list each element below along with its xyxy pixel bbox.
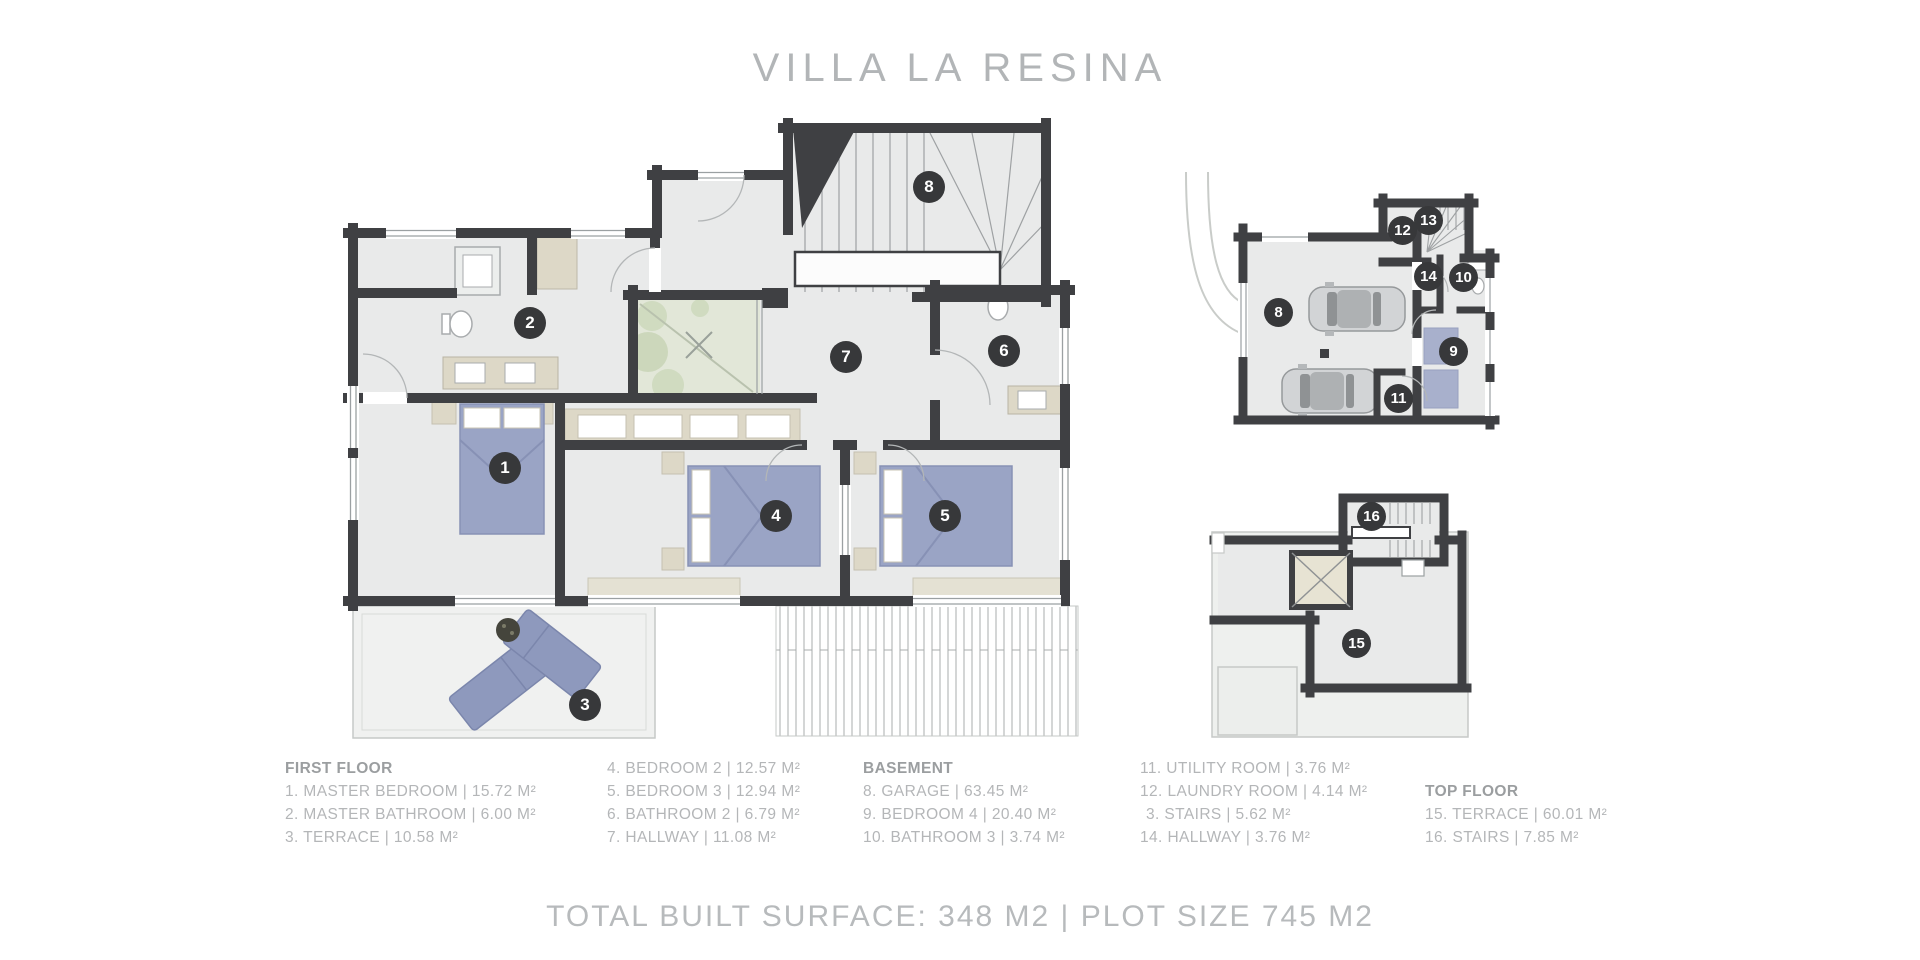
garage-pillar xyxy=(1320,349,1329,358)
room-badge-15: 15 xyxy=(1342,629,1371,658)
page-title: VILLA LA RESINA xyxy=(0,46,1920,91)
basement-plan-drawing xyxy=(1160,160,1540,470)
room-badge-14: 14 xyxy=(1414,262,1443,291)
room-badge-13: 13 xyxy=(1414,206,1443,235)
stair-nib xyxy=(1402,560,1424,576)
legend-basement: BASEMENT 8. GARAGE | 63.45 M² 9. BEDROOM… xyxy=(863,757,1065,849)
legend-item: 11. UTILITY ROOM | 3.76 M² xyxy=(1140,757,1367,780)
total-surface-text: TOTAL BUILT SURFACE: 348 M2 | PLOT SIZE … xyxy=(0,900,1920,934)
legend-item: 5. BEDROOM 3 | 12.94 M² xyxy=(607,780,800,803)
legend-item: 7. HALLWAY | 11.08 M² xyxy=(607,826,800,849)
legend-heading: TOP FLOOR xyxy=(1425,780,1607,803)
room-badge-9: 9 xyxy=(1439,337,1468,366)
room-badge-3: 3 xyxy=(569,689,601,721)
lower-terrace xyxy=(1218,667,1297,735)
driveway-curves xyxy=(1186,172,1243,334)
legend-item: 14. HALLWAY | 3.76 M² xyxy=(1140,826,1367,849)
skylight xyxy=(1292,553,1350,607)
room-badge-8-basement: 8 xyxy=(1264,298,1293,327)
room-badge-4: 4 xyxy=(760,500,792,532)
legend-item: 3. TERRACE | 10.58 M² xyxy=(285,826,536,849)
room-badge-5: 5 xyxy=(929,500,961,532)
room-badge-6: 6 xyxy=(988,335,1020,367)
legend-item: 4. BEDROOM 2 | 12.57 M² xyxy=(607,757,800,780)
legend-heading: BASEMENT xyxy=(863,757,1065,780)
legend-item: 8. GARAGE | 63.45 M² xyxy=(863,780,1065,803)
wall-pillar xyxy=(762,288,788,308)
room-badge-8: 8 xyxy=(913,171,945,203)
top-floor-plan-drawing xyxy=(1195,480,1515,760)
legend-item: 10. BATHROOM 3 | 3.74 M² xyxy=(863,826,1065,849)
legend-first-floor-cont: 4. BEDROOM 2 | 12.57 M² 5. BEDROOM 3 | 1… xyxy=(607,757,800,849)
room-badge-10: 10 xyxy=(1449,263,1478,292)
legend-item: 2. MASTER BATHROOM | 6.00 M² xyxy=(285,803,536,826)
legend-item: 15. TERRACE | 60.01 M² xyxy=(1425,803,1607,826)
legend-item: 1. MASTER BEDROOM | 15.72 M² xyxy=(285,780,536,803)
legend-top-floor: TOP FLOOR 15. TERRACE | 60.01 M² 16. STA… xyxy=(1425,780,1607,849)
room-badge-16: 16 xyxy=(1357,502,1386,531)
hall-closet xyxy=(565,409,800,444)
legend-item: 12. LAUNDRY ROOM | 4.14 M² xyxy=(1140,780,1367,803)
legend-item: 9. BEDROOM 4 | 20.40 M² xyxy=(863,803,1065,826)
pergola-slats xyxy=(776,606,1078,736)
legend-item: 16. STAIRS | 7.85 M² xyxy=(1425,826,1607,849)
legend-item: 3. STAIRS | 5.62 M² xyxy=(1140,803,1367,826)
legend-first-floor: FIRST FLOOR 1. MASTER BEDROOM | 15.72 M²… xyxy=(285,757,536,849)
legend-basement-cont: 11. UTILITY ROOM | 3.76 M² 12. LAUNDRY R… xyxy=(1140,757,1367,849)
floorplan-page: VILLA LA RESINA xyxy=(0,0,1920,960)
courtyard-garden xyxy=(628,299,760,401)
parapet-cap xyxy=(1212,533,1224,553)
legend-heading: FIRST FLOOR xyxy=(285,757,536,780)
first-floor-plan-drawing xyxy=(330,105,1100,755)
room-badge-12: 12 xyxy=(1388,216,1417,245)
legend-item: 6. BATHROOM 2 | 6.79 M² xyxy=(607,803,800,826)
room-badge-1: 1 xyxy=(489,452,521,484)
room-badge-2: 2 xyxy=(514,307,546,339)
stair-landing xyxy=(1352,527,1410,538)
room-badge-11: 11 xyxy=(1384,384,1413,413)
room-badge-7: 7 xyxy=(830,341,862,373)
